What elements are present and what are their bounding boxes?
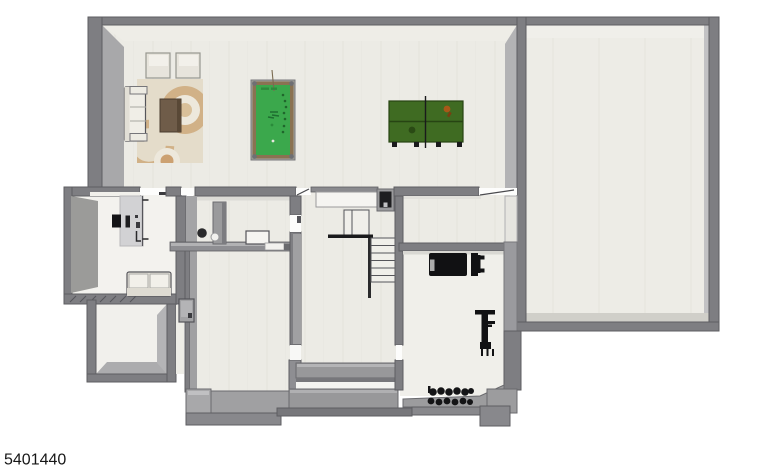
svg-text:5401440: 5401440 xyxy=(4,452,66,469)
